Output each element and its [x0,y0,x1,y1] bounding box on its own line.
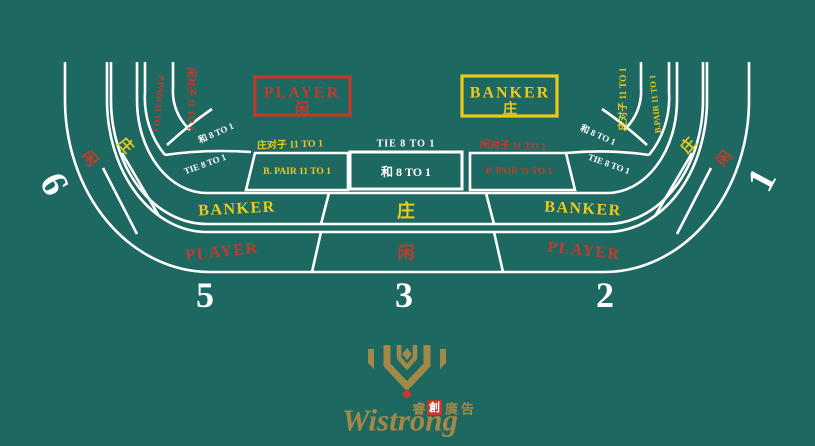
center-banker-cn[interactable]: 庄 [397,200,415,221]
center-tie-box-label: 和 8 TO 1 [380,164,431,179]
corner-left-pair-cn-rot-label[interactable]: 闲对子 11 TO 1 [185,68,197,131]
center-tie-label[interactable]: TIE 8 TO 1 [377,139,436,150]
table-svg: PLAYER 闲 BANKER 庄 TIE 8 TO 1 和 8 TO 1 庄 … [0,0,815,446]
player-box-label-en: PLAYER [264,85,340,102]
logo-cn-chars-right: 廣告 [445,402,477,417]
left-pair-box-label: B. PAIR 11 TO 1 [263,167,331,177]
banker-box-label-en: BANKER [470,85,550,102]
center-player-cn[interactable]: 闲 [398,243,415,263]
logo-cn-char-stamp: 創 [428,400,440,414]
logo-cn-char-1: 睿 [412,402,426,417]
seat-number-5: 5 [196,275,214,315]
player-box-label-cn: 闲 [295,102,309,118]
seat-number-3: 3 [395,275,413,315]
corner-right-pair-cn-rot-label[interactable]: 庄对子 11 TO 1 [617,67,629,130]
right-pair-box-label: P. PAIR 11 TO 1 [486,167,553,177]
seat-number-2: 2 [596,275,614,315]
wistrong-chinese-name: 睿 創 廣告 [412,400,477,417]
banker-box-label-cn: 庄 [503,101,517,118]
baccarat-table-layout: PLAYER 闲 BANKER 庄 TIE 8 TO 1 和 8 TO 1 庄 … [0,0,815,446]
